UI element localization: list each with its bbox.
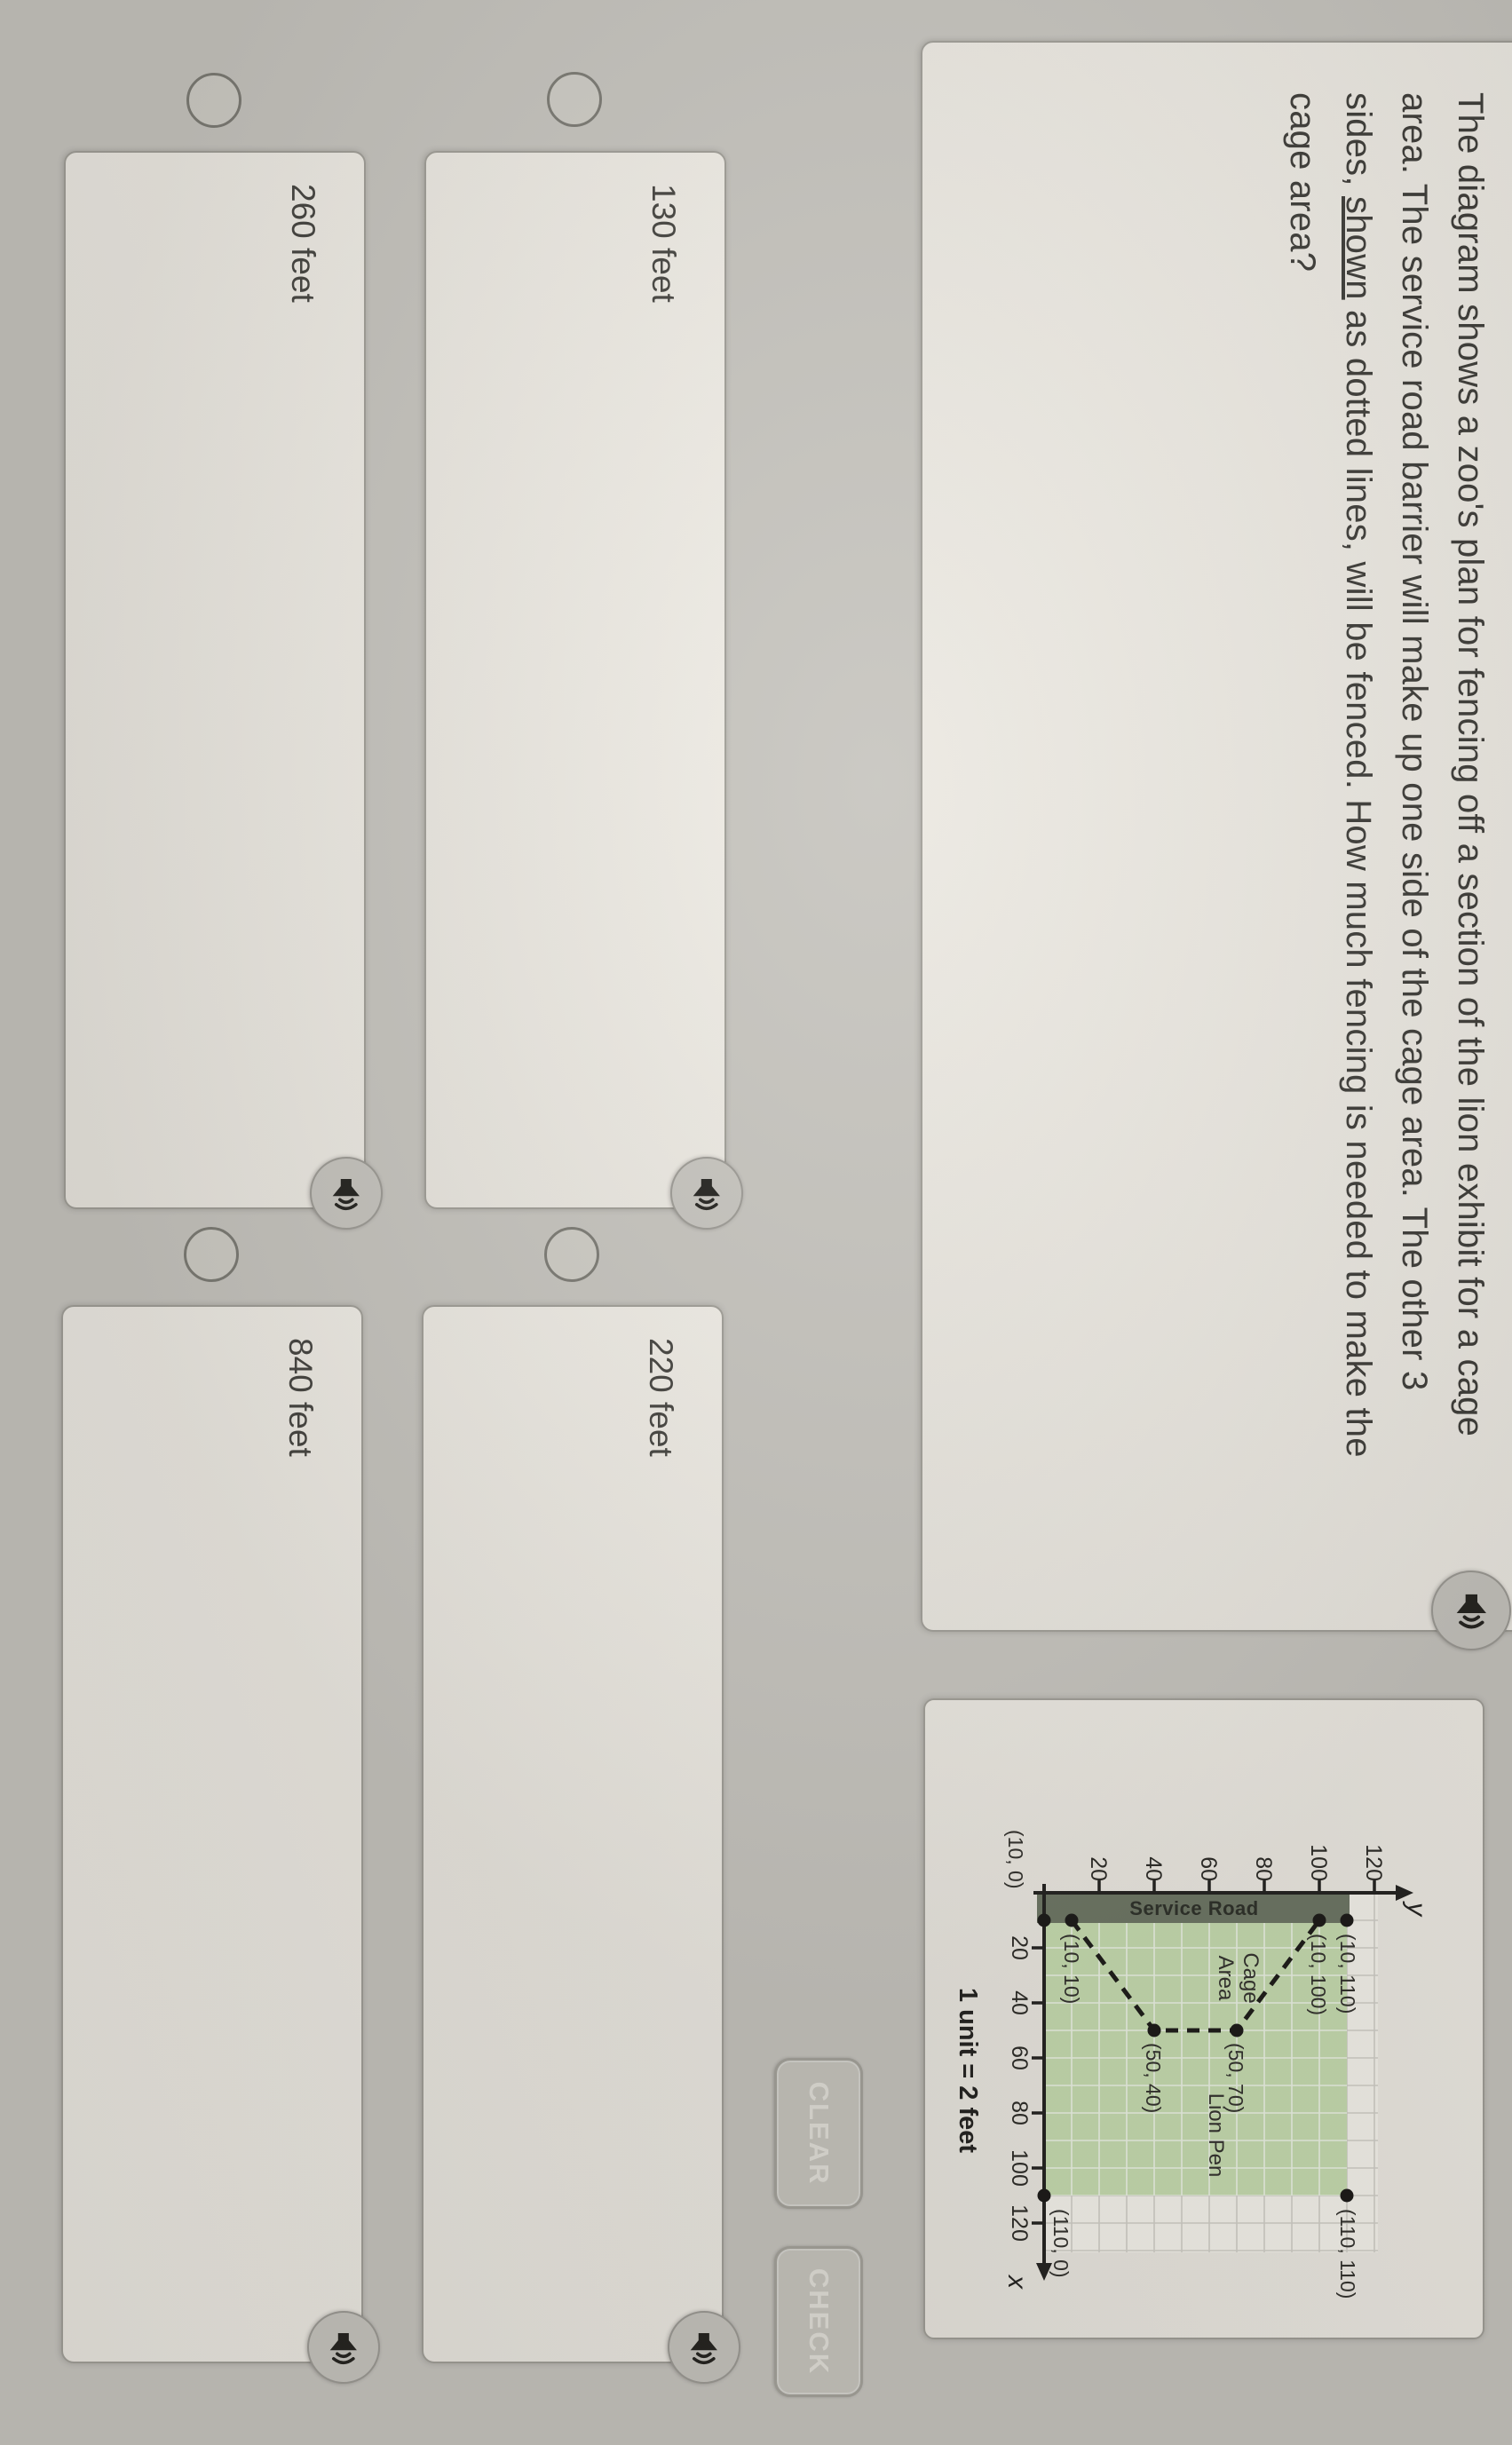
- question-line-2: area. The service road barrier will make…: [1386, 92, 1442, 1623]
- question-text: The diagram shows a zoo's plan for fenci…: [1274, 92, 1498, 1623]
- tts-260-feet[interactable]: [310, 1157, 383, 1230]
- answer-card-260-feet[interactable]: 260 feet: [64, 151, 366, 1209]
- point-label-50-40: (50, 40): [1141, 2043, 1165, 2113]
- radio-220-feet[interactable]: [544, 1227, 599, 1282]
- y-tick-40: 40: [1140, 1835, 1166, 1881]
- speaker-icon: [1447, 1586, 1494, 1634]
- answer-card-220-feet[interactable]: 220 feet: [422, 1305, 724, 2363]
- y-axis-arrow: [1396, 1885, 1413, 1901]
- radio-840-feet[interactable]: [184, 1227, 239, 1282]
- point-label-10-10: (10, 10): [1059, 1934, 1083, 2004]
- service-road-label: Service Road: [1129, 1897, 1258, 1920]
- radio-130-feet[interactable]: [547, 72, 602, 127]
- point-label-10-100: (10, 100): [1306, 1934, 1330, 2015]
- question-line-4: cage area?: [1274, 92, 1330, 1623]
- app-stage: The diagram shows a zoo's plan for fenci…: [0, 0, 1512, 2445]
- question-line-1: The diagram shows a zoo's plan for fenci…: [1442, 92, 1498, 1623]
- answer-card-840-feet[interactable]: 840 feet: [61, 1305, 363, 2363]
- speaker-icon: [683, 2326, 725, 2369]
- cage-area-label: Cage Area: [1213, 1929, 1263, 2027]
- radio-260-feet[interactable]: [186, 73, 241, 128]
- speaker-icon: [685, 1172, 728, 1215]
- x-axis-letter: x: [1001, 2275, 1032, 2289]
- x-ticks: [1032, 1948, 1044, 2223]
- y-tick-120: 120: [1360, 1835, 1386, 1881]
- question-card: The diagram shows a zoo's plan for fenci…: [921, 41, 1512, 1632]
- x-tick-120: 120: [1006, 2188, 1032, 2259]
- y-tick-100: 100: [1305, 1835, 1331, 1881]
- tts-220-feet[interactable]: [668, 2311, 740, 2384]
- diagram-card: y x 20 40 60 80 100 120 20 40 60 80 100 …: [923, 1698, 1484, 2339]
- answer-label: 130 feet: [645, 184, 682, 303]
- question-line-3: sides, shown as dotted lines, will be fe…: [1330, 92, 1386, 1623]
- tts-130-feet[interactable]: [670, 1157, 743, 1230]
- speaker-icon: [322, 2326, 365, 2369]
- y-tick-80: 80: [1250, 1835, 1276, 1881]
- y-axis-letter: y: [1401, 1903, 1431, 1916]
- tts-840-feet[interactable]: [307, 2311, 380, 2384]
- unit-scale-note: 1 unit = 2 feet: [953, 1946, 982, 2195]
- underlined-word: shown: [1339, 196, 1378, 300]
- point-label-10-110: (10, 110): [1335, 1934, 1359, 2014]
- answer-card-130-feet[interactable]: 130 feet: [424, 151, 726, 1209]
- check-button[interactable]: CHECK: [774, 2246, 863, 2397]
- point-label-110-110: (110, 110): [1335, 2209, 1359, 2299]
- answer-label: 220 feet: [642, 1338, 679, 1457]
- y-tick-60: 60: [1195, 1835, 1221, 1881]
- point-label-110-0: (110, 0): [1049, 2209, 1073, 2278]
- answer-label: 840 feet: [281, 1338, 319, 1457]
- question-tts-button[interactable]: [1431, 1571, 1511, 1650]
- y-tick-20: 20: [1085, 1835, 1111, 1881]
- point-label-10-0: (10, 0): [1003, 1830, 1027, 1888]
- lion-pen-label: Lion Pen: [1203, 2069, 1228, 2202]
- clear-button[interactable]: CLEAR: [774, 2058, 863, 2209]
- answer-label: 260 feet: [284, 184, 321, 303]
- lion-pen-region: [1044, 1894, 1347, 2196]
- y-ticks: [1099, 1880, 1374, 1893]
- speaker-icon: [325, 1172, 368, 1215]
